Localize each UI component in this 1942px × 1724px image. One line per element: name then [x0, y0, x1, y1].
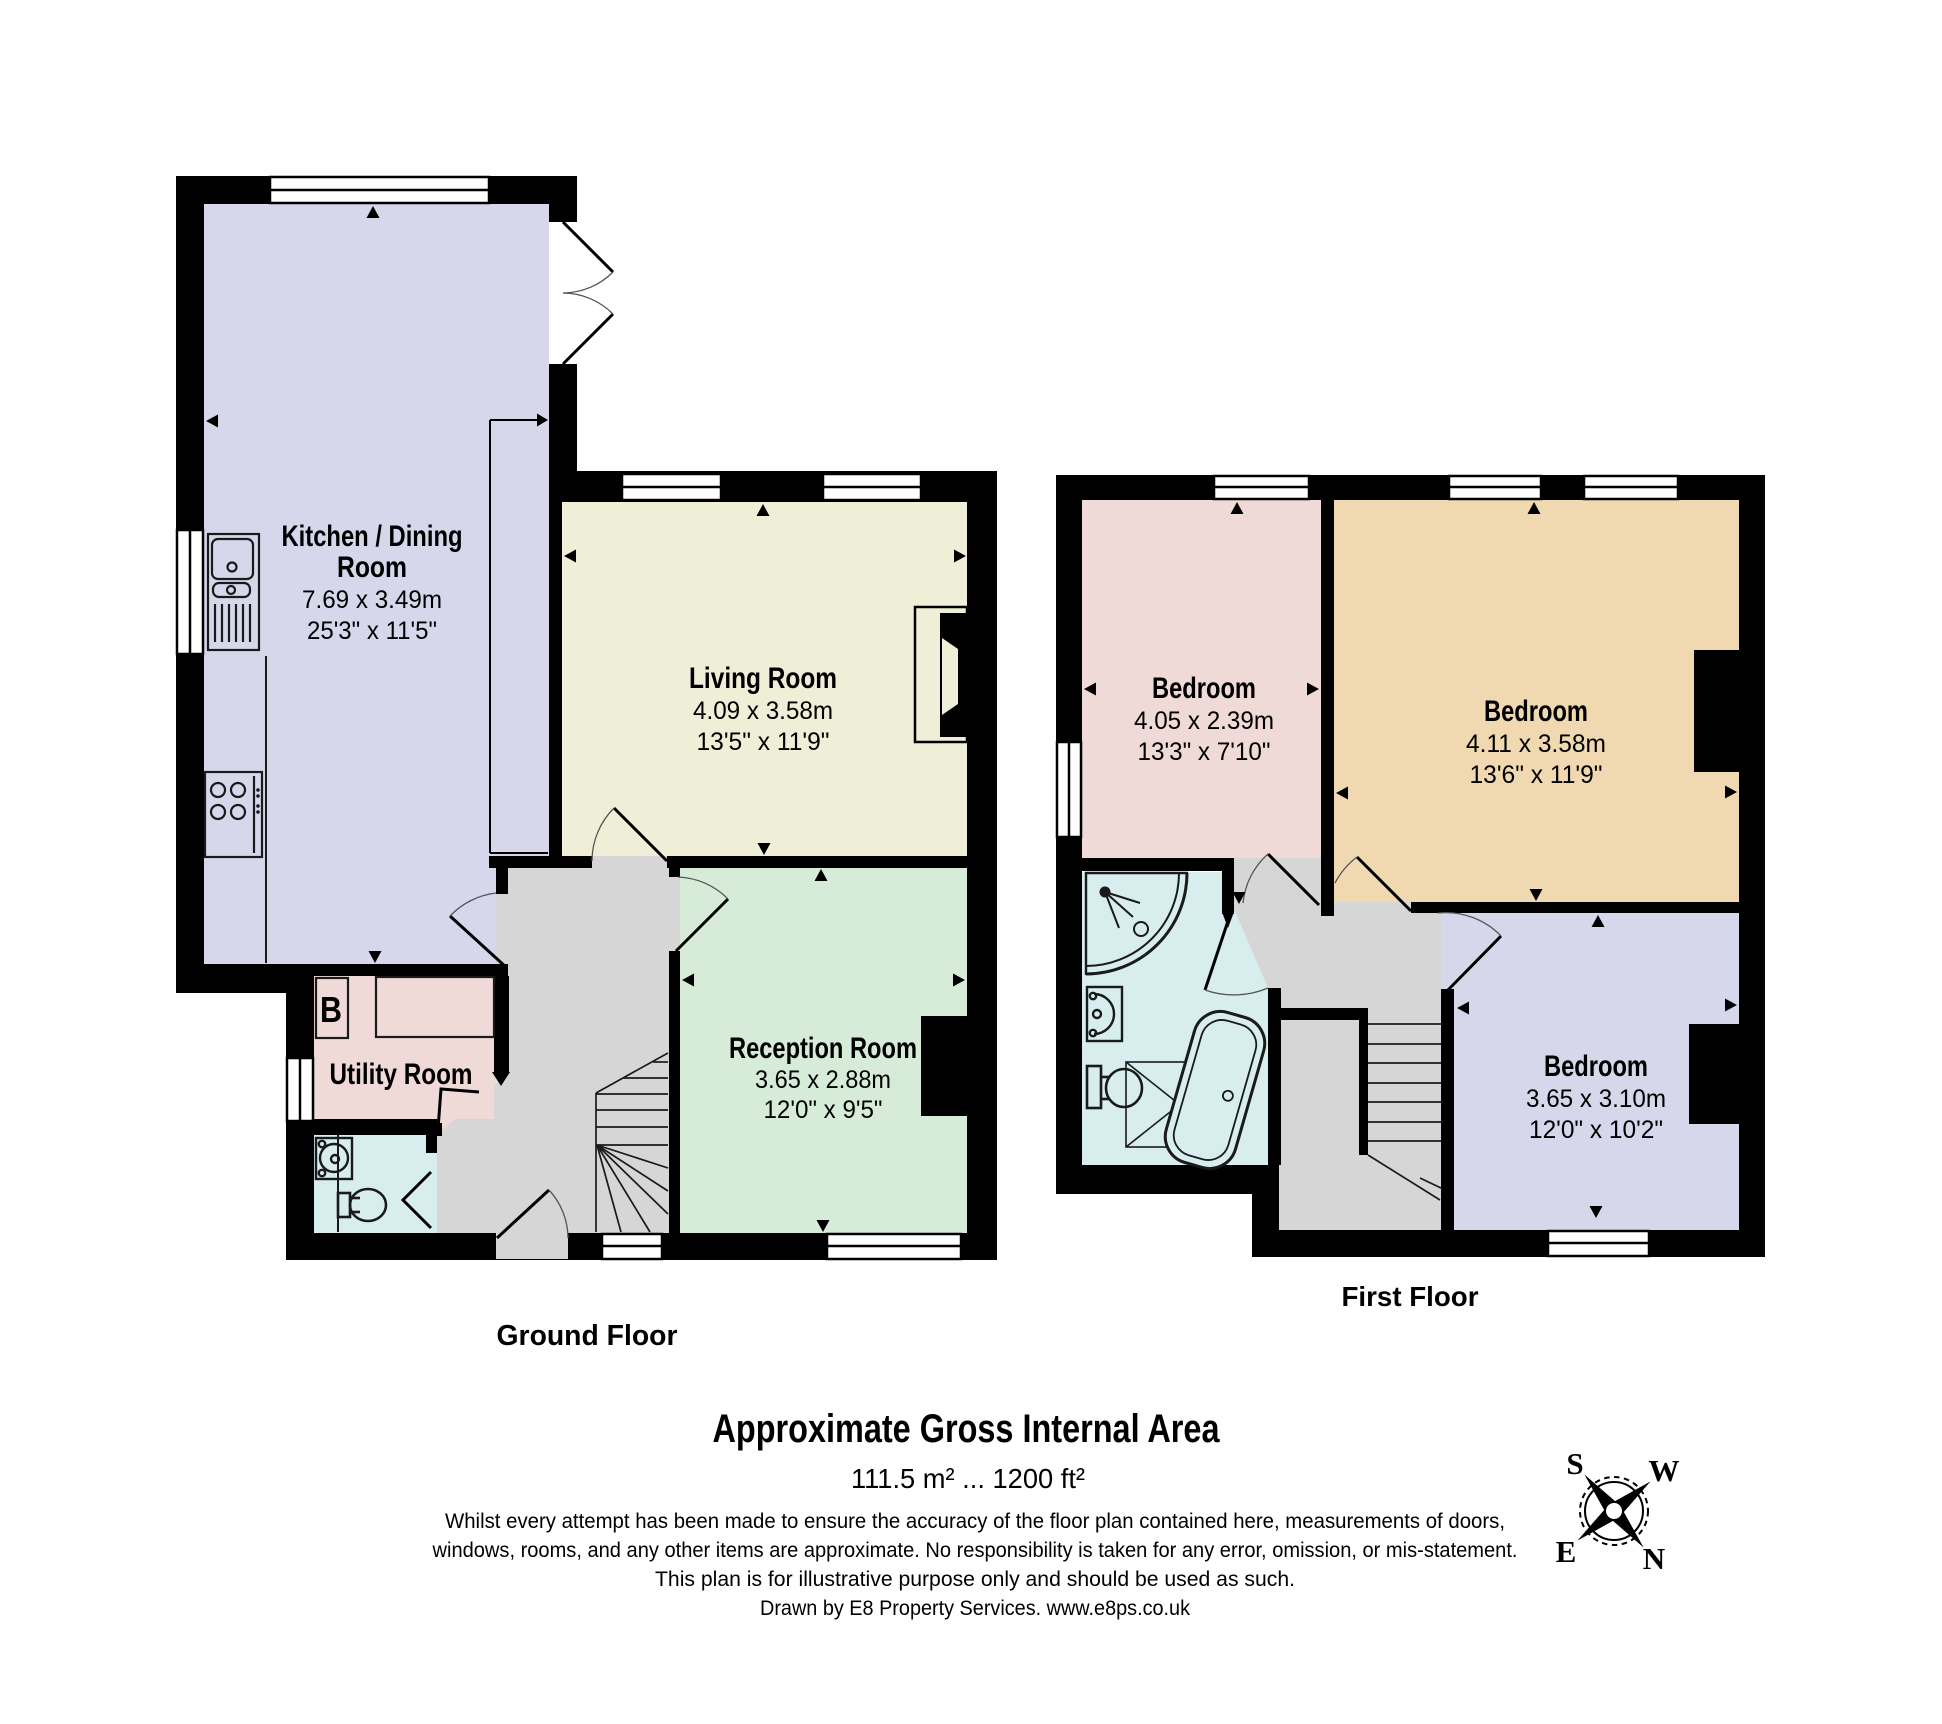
- svg-text:E: E: [1556, 1534, 1577, 1569]
- svg-text:4.11 x 3.58m: 4.11 x 3.58m: [1466, 730, 1606, 758]
- svg-text:S: S: [1566, 1446, 1583, 1481]
- svg-text:7.69 x 3.49m: 7.69 x 3.49m: [302, 586, 442, 614]
- svg-text:N: N: [1643, 1541, 1665, 1576]
- svg-text:13'3" x 7'10": 13'3" x 7'10": [1138, 738, 1271, 766]
- svg-text:This plan is for illustrative: This plan is for illustrative purpose on…: [655, 1568, 1295, 1591]
- svg-text:Room: Room: [337, 551, 407, 584]
- svg-text:4.09 x 3.58m: 4.09 x 3.58m: [693, 697, 833, 725]
- svg-text:B: B: [320, 989, 342, 1030]
- svg-text:Utility Room: Utility Room: [330, 1058, 473, 1091]
- svg-text:Whilst every attempt has been: Whilst every attempt has been made to en…: [445, 1510, 1505, 1533]
- svg-text:3.65 x 3.10m: 3.65 x 3.10m: [1526, 1085, 1666, 1113]
- svg-text:Drawn by E8 Property Services.: Drawn by E8 Property Services. www.e8ps.…: [760, 1597, 1190, 1620]
- svg-text:windows, rooms, and any other: windows, rooms, and any other items are …: [432, 1539, 1518, 1562]
- svg-text:Living Room: Living Room: [689, 662, 837, 695]
- svg-text:111.5 m² ... 1200 ft²: 111.5 m² ... 1200 ft²: [851, 1463, 1085, 1494]
- svg-text:Reception Room: Reception Room: [729, 1032, 917, 1065]
- svg-text:Bedroom: Bedroom: [1544, 1050, 1648, 1083]
- svg-text:Kitchen / Dining: Kitchen / Dining: [282, 520, 463, 553]
- svg-text:First Floor: First Floor: [1342, 1281, 1479, 1312]
- svg-text:25'3" x 11'5": 25'3" x 11'5": [307, 617, 437, 645]
- svg-text:Ground Floor: Ground Floor: [497, 1320, 678, 1352]
- svg-text:Bedroom: Bedroom: [1484, 695, 1588, 728]
- svg-text:13'5" x 11'9": 13'5" x 11'9": [697, 728, 830, 756]
- svg-text:4.05 x 2.39m: 4.05 x 2.39m: [1134, 707, 1274, 735]
- svg-text:12'0" x 10'2": 12'0" x 10'2": [1529, 1116, 1663, 1144]
- svg-text:3.65 x 2.88m: 3.65 x 2.88m: [755, 1066, 891, 1094]
- svg-text:W: W: [1649, 1453, 1680, 1488]
- svg-text:Approximate Gross Internal Are: Approximate Gross Internal Area: [713, 1407, 1221, 1451]
- svg-text:12'0" x 9'5": 12'0" x 9'5": [764, 1096, 883, 1124]
- svg-text:Bedroom: Bedroom: [1152, 672, 1256, 705]
- svg-text:13'6" x 11'9": 13'6" x 11'9": [1470, 761, 1603, 789]
